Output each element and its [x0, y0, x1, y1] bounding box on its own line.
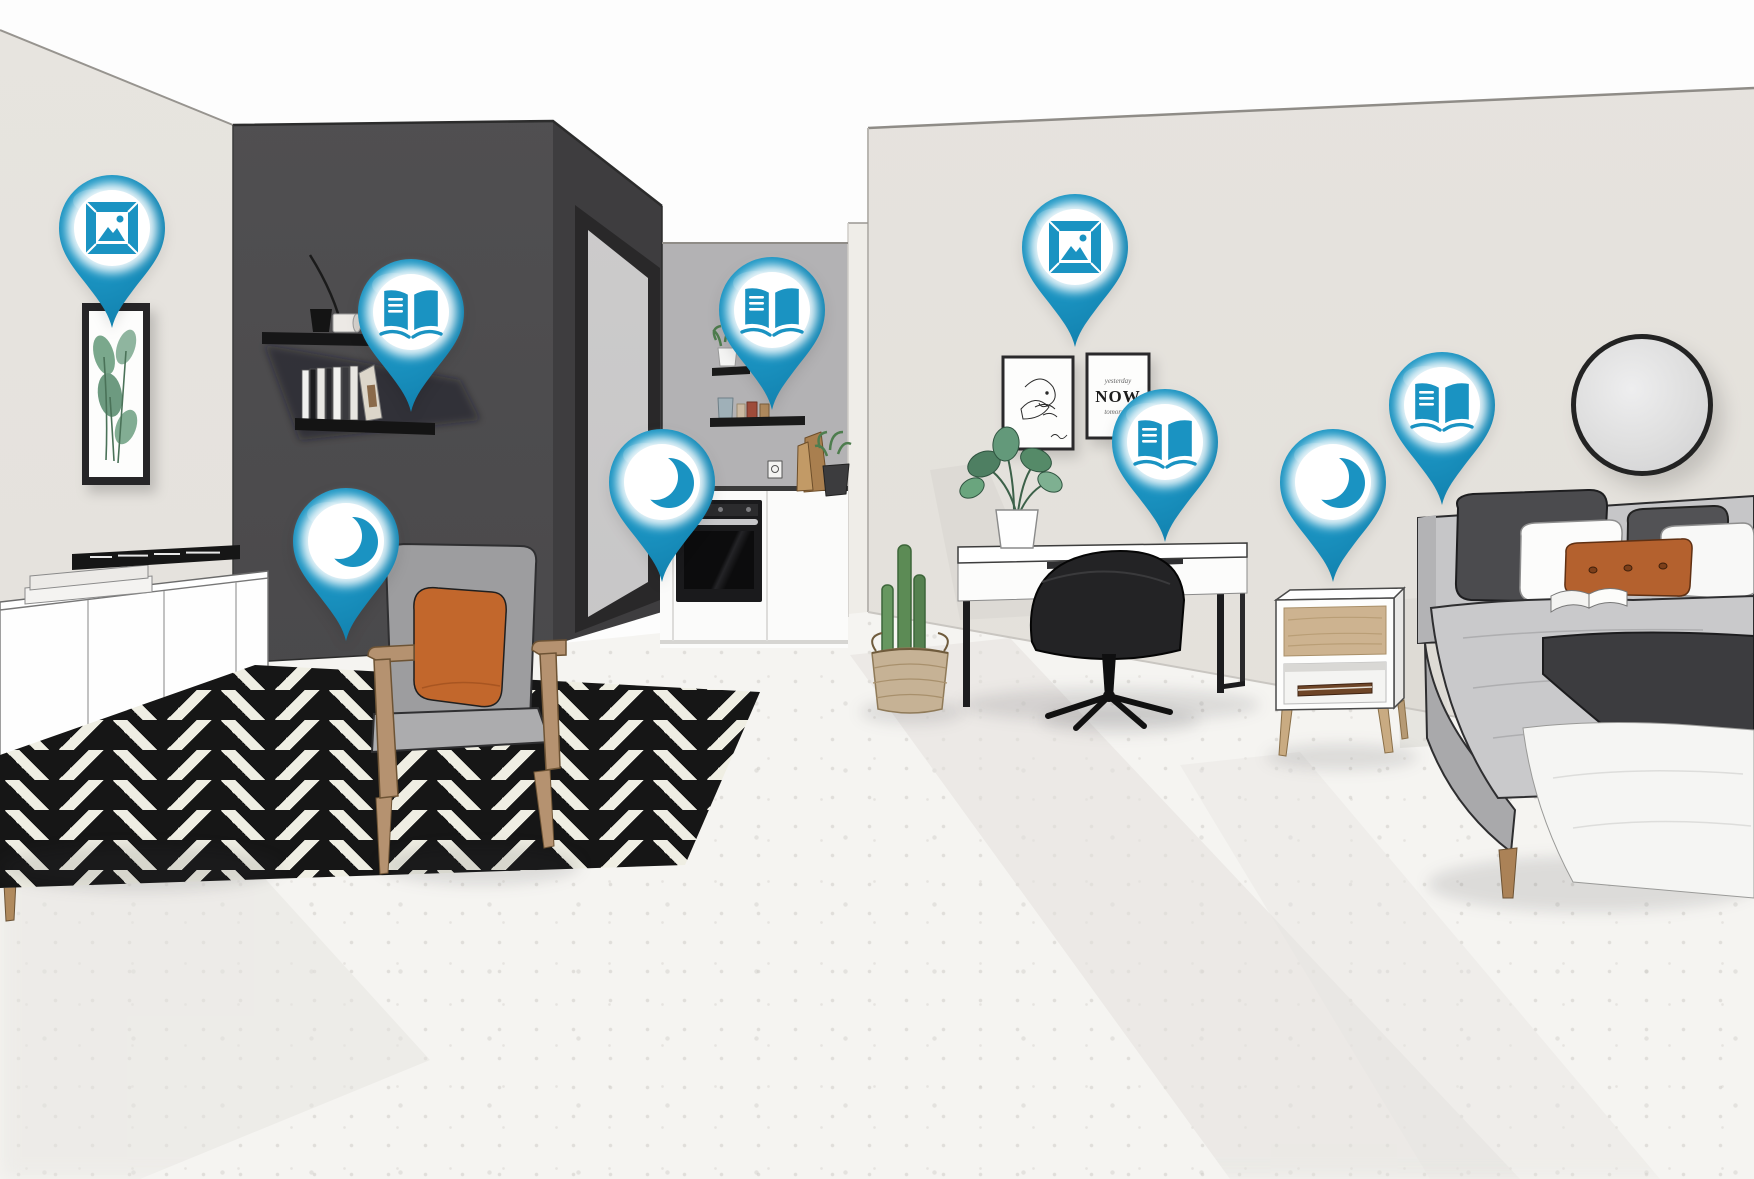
pin-book-shelf[interactable]: [356, 257, 466, 417]
pin-picture-workspace[interactable]: [1020, 192, 1130, 352]
pin-picture-living[interactable]: [57, 173, 167, 333]
pin-book-kitchen[interactable]: [717, 255, 827, 415]
pin-book-bedroom[interactable]: [1387, 350, 1497, 510]
office-chair: [1018, 538, 1198, 733]
cabinet-seam: [766, 491, 768, 641]
nightstand: [1262, 578, 1417, 773]
bed: [1403, 478, 1754, 900]
pin-book-workspace[interactable]: [1110, 387, 1220, 547]
room-scene: yesterday NOW tomorrow: [0, 0, 1754, 1179]
pin-moon-bedroom[interactable]: [1278, 427, 1388, 587]
pin-moon-living[interactable]: [291, 486, 401, 646]
pin-moon-kitchen[interactable]: [607, 427, 717, 587]
picture-frame-icon: [86, 202, 138, 254]
picture-frame-icon: [1049, 221, 1101, 273]
cactus-basket: [858, 533, 968, 723]
round-mirror: [1571, 334, 1713, 476]
shadow: [0, 845, 280, 891]
poster-line1: yesterday: [1104, 377, 1132, 385]
